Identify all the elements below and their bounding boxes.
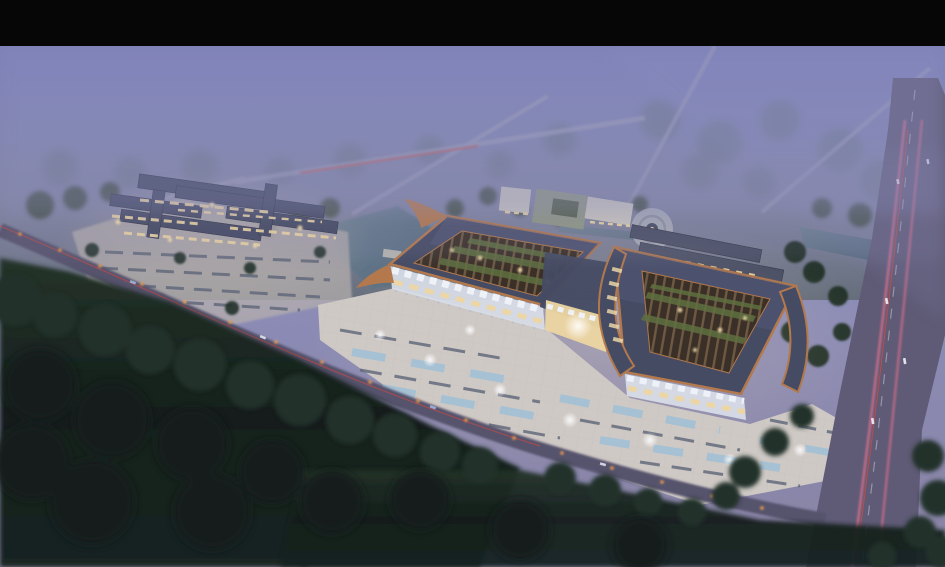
letterbox-top-bar bbox=[0, 0, 945, 46]
rendering-canvas bbox=[0, 0, 945, 567]
aerial-rendering bbox=[0, 0, 945, 567]
entrance-light bbox=[564, 312, 592, 340]
